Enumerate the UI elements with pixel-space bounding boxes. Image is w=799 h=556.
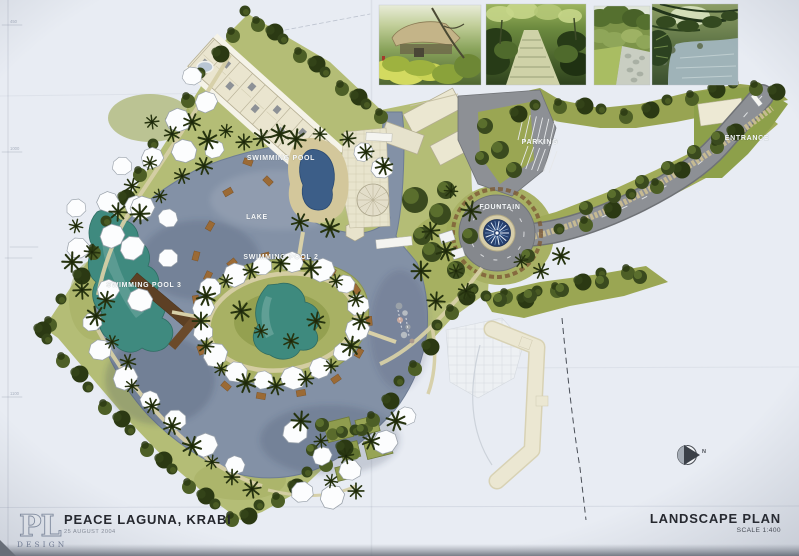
tree-icon — [767, 85, 776, 94]
tree-icon — [484, 294, 490, 300]
tree-icon — [423, 243, 435, 255]
tree-icon — [686, 90, 694, 98]
tree-icon — [367, 411, 375, 419]
project-date: 25 AUGUST 2004 — [64, 529, 116, 535]
tree-icon — [170, 467, 176, 473]
tree-icon — [620, 108, 628, 116]
tree-icon — [151, 142, 157, 148]
dock-icon — [256, 392, 266, 399]
tree-icon — [556, 284, 564, 292]
palm-tree-icon — [358, 144, 374, 160]
palm-tree-icon — [236, 134, 253, 151]
tree-icon — [281, 37, 287, 43]
drawing-title: LANDSCAPE PLAN — [650, 511, 781, 526]
tree-icon — [337, 427, 344, 434]
dock-icon — [296, 389, 306, 396]
tree-icon — [72, 269, 81, 278]
tree-icon — [557, 227, 563, 233]
label-swimming-pool-3: SWIMMING POOL 3 — [106, 282, 181, 289]
tree-icon — [112, 412, 121, 421]
tree-icon — [272, 492, 280, 500]
tree-icon — [104, 219, 110, 225]
tree-icon — [492, 142, 503, 153]
tree-icon — [213, 502, 219, 508]
tree-icon — [403, 188, 419, 204]
tree-icon — [336, 80, 344, 88]
tree-icon — [305, 470, 311, 476]
tree-icon — [357, 425, 364, 432]
tree-icon — [421, 340, 430, 349]
sheet-bottom-shadow — [0, 544, 799, 556]
garden-pavilion-photo — [372, 5, 482, 85]
tree-icon — [86, 385, 92, 391]
tree-icon — [554, 98, 562, 106]
tree-icon — [575, 99, 584, 108]
tree-icon — [629, 192, 635, 198]
tree-icon — [397, 379, 403, 385]
tree-icon — [211, 47, 220, 56]
tree-icon — [636, 176, 644, 184]
tree-icon — [522, 250, 530, 258]
tree-icon — [662, 162, 670, 170]
tree-icon — [59, 297, 65, 303]
tree-icon — [750, 80, 758, 88]
label-lake: LAKE — [246, 214, 268, 221]
jungle-path-photo — [474, 1, 592, 85]
tree-icon — [596, 276, 604, 284]
tree-icon — [641, 103, 650, 112]
stream-photo — [644, 4, 739, 85]
tree-icon — [183, 478, 191, 486]
tree-icon — [57, 352, 65, 360]
tree-icon — [294, 47, 302, 55]
tree-icon — [409, 360, 417, 368]
tree-icon — [227, 27, 235, 35]
tree-icon — [70, 367, 79, 376]
fountain — [479, 215, 515, 251]
tree-icon — [478, 119, 488, 129]
tree-icon — [463, 229, 473, 239]
tree-icon — [712, 132, 720, 140]
tree-icon — [651, 178, 659, 186]
frame-mark-1: 450 — [10, 19, 18, 24]
tree-icon — [573, 275, 582, 284]
tree-icon — [349, 90, 358, 99]
tree-icon — [435, 323, 441, 329]
tree-icon — [381, 394, 390, 403]
palm-tree-icon — [314, 434, 328, 448]
tree-icon — [141, 441, 149, 449]
tree-icon — [243, 9, 249, 15]
tree-icon — [634, 271, 642, 279]
tree-icon — [252, 16, 260, 24]
tree-icon — [726, 125, 735, 134]
tree-icon — [494, 294, 502, 302]
tree-icon — [33, 323, 42, 332]
project-title: PEACE LAGUNA, KRABI — [64, 512, 232, 527]
tree-icon — [307, 445, 314, 452]
pl-design-logo: PL — [19, 509, 62, 544]
tree-icon — [603, 203, 612, 212]
tree-icon — [134, 166, 142, 174]
reference-photo-strip — [372, 1, 739, 85]
tree-icon — [335, 441, 344, 450]
tree-icon — [507, 163, 517, 173]
tree-icon — [446, 304, 454, 312]
tree-icon — [430, 204, 443, 217]
tree-icon — [688, 146, 696, 154]
frame-mark-3: 1100 — [10, 391, 20, 396]
tree-icon — [196, 489, 205, 498]
frame-mark-2: 1000 — [10, 146, 20, 151]
tree-icon — [364, 102, 370, 108]
label-entrance: ENTRANCE — [725, 135, 770, 142]
tree-icon — [580, 202, 588, 210]
tree-icon — [414, 228, 425, 239]
north-label: N — [702, 449, 706, 455]
tree-icon — [509, 107, 518, 116]
tree-icon — [375, 108, 383, 116]
tree-icon — [307, 57, 316, 66]
label-swimming-pool-2: SWIMMING POOL 2 — [243, 254, 318, 261]
tree-icon — [599, 107, 605, 113]
tree-icon — [239, 509, 248, 518]
tree-icon — [117, 191, 126, 200]
garden-walkway-photo — [588, 4, 656, 85]
label-swimming-pool: SWIMMING POOL — [247, 155, 315, 162]
tree-icon — [265, 25, 274, 34]
tree-icon — [128, 428, 134, 434]
tree-icon — [99, 399, 107, 407]
tree-icon — [323, 70, 329, 76]
label-fountain: FOUNTAIN — [479, 204, 520, 211]
tree-icon — [476, 152, 484, 160]
site-plan-svg: 450 1000 1100 — [0, 0, 799, 556]
label-parking: PARKING — [522, 139, 559, 146]
tree-icon — [608, 190, 616, 198]
landscape-plan-sheet: 450 1000 1100 — [0, 0, 799, 556]
tree-icon — [257, 503, 263, 509]
tree-icon — [316, 419, 324, 427]
tree-icon — [45, 337, 51, 343]
tree-icon — [665, 98, 671, 104]
tree-icon — [622, 264, 630, 272]
tree-icon — [524, 290, 532, 298]
tree-icon — [533, 103, 539, 109]
tree-icon — [182, 92, 190, 100]
tree-icon — [580, 216, 588, 224]
drawing-scale: SCALE 1:400 — [737, 527, 781, 534]
palm-tree-icon — [145, 115, 159, 129]
tree-icon — [154, 453, 163, 462]
palm-tree-icon — [73, 281, 92, 300]
